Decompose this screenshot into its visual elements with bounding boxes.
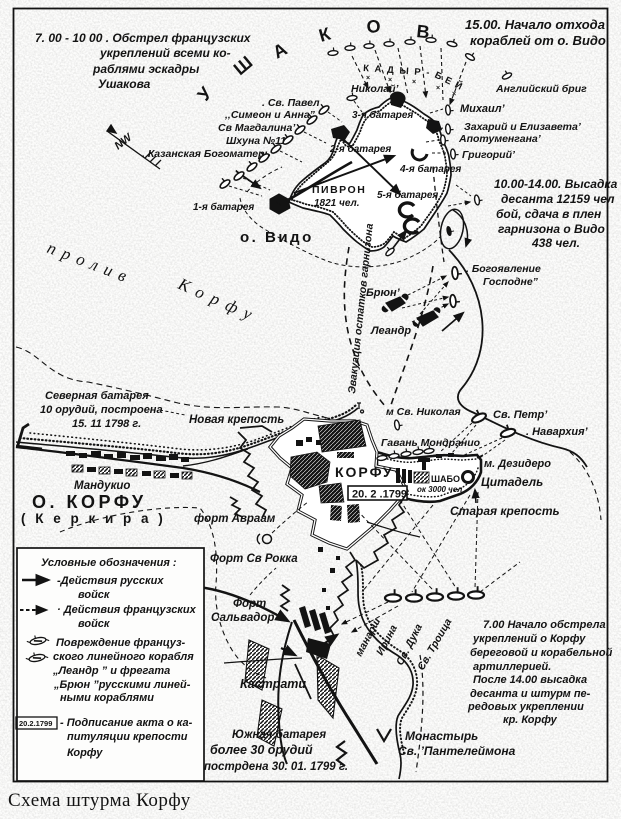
svg-text:Северная батарея: Северная батарея — [45, 390, 149, 402]
svg-text:артиллерией.: артиллерией. — [473, 661, 551, 673]
svg-text:7. 00 - 10 00 . Обстрел францу: 7. 00 - 10 00 . Обстрел французских — [35, 31, 252, 45]
svg-text:Монастырь: Монастырь — [405, 729, 478, 743]
svg-text:. Св. Павел: . Св. Павел — [262, 97, 320, 109]
svg-text:Леандр: Леандр — [370, 325, 411, 337]
svg-text:Южная батарея: Южная батарея — [232, 729, 326, 741]
svg-text:форт Авраам: форт Авраам — [194, 513, 276, 525]
svg-text:м. Дезидеро: м. Дезидеро — [484, 458, 551, 470]
svg-text:10 орудий, построена: 10 орудий, построена — [40, 404, 163, 416]
svg-text:Св Магдалина’: Св Магдалина’ — [218, 122, 296, 134]
svg-text:ПИВРОН: ПИВРОН — [312, 184, 366, 196]
svg-text:×: × — [436, 85, 440, 92]
svg-text:КОРФУ: КОРФУ — [335, 464, 394, 480]
svg-text:Брюн’: Брюн’ — [366, 287, 401, 299]
svg-text:Кастрати: Кастрати — [240, 677, 306, 691]
svg-text:ными кораблями: ными кораблями — [60, 692, 154, 704]
svg-text:редовых укреплении: редовых укреплении — [467, 701, 584, 713]
svg-text:гарнизона о Видо: гарнизона о Видо — [498, 222, 605, 236]
svg-text:. Казанская Богоматерь’: . Казанская Богоматерь’ — [142, 148, 275, 160]
svg-text:бой, сдача в плен: бой, сдача в плен — [496, 207, 602, 221]
svg-text:„Брюн ”русскими линей-: „Брюн ”русскими линей- — [53, 679, 191, 691]
svg-text:Григорий’: Григорий’ — [462, 149, 516, 161]
svg-text:Господне”: Господне” — [483, 276, 539, 288]
svg-text:5-я батарея: 5-я батарея — [377, 189, 438, 201]
svg-text:Новая крепость: Новая крепость — [189, 414, 284, 426]
svg-text:20.2.1799: 20.2.1799 — [19, 719, 52, 728]
svg-text:раблями эскадры: раблями эскадры — [92, 62, 200, 76]
svg-text:. Богоявление: . Богоявление — [466, 263, 541, 275]
svg-text:Мандукио: Мандукио — [74, 480, 130, 492]
svg-text:Михаил’: Михаил’ — [460, 103, 506, 115]
svg-text:м Св. Николая: м Св. Николая — [386, 406, 461, 418]
svg-text:После 14.00 высадка: После 14.00 высадка — [473, 674, 587, 686]
svg-text:Ушакова: Ушакова — [98, 77, 151, 91]
svg-text:Старая крепость: Старая крепость — [450, 504, 560, 518]
svg-text:1-я батарея: 1-я батарея — [193, 201, 254, 213]
svg-text:Св. ’Пантелеймона: Св. ’Пантелеймона — [398, 744, 516, 758]
svg-text:-Действия русских: -Действия русских — [57, 575, 164, 587]
svg-text:1821 чел.: 1821 чел. — [314, 198, 360, 209]
svg-text:×: × — [452, 91, 456, 98]
svg-text:Форт Св Рокка: Форт Св Рокка — [210, 553, 298, 565]
svg-text:Условные обозначения :: Условные обозначения : — [41, 557, 177, 569]
svg-text:15. 11 1798 г.: 15. 11 1798 г. — [72, 418, 141, 430]
svg-text:2-я батарея: 2-я батарея — [329, 143, 391, 155]
svg-text:войск: войск — [78, 589, 111, 601]
svg-text:кораблей от о. Видо: кораблей от о. Видо — [470, 33, 606, 48]
svg-text:береговой и корабельной: береговой и корабельной — [470, 647, 613, 659]
svg-text:15.00. Начало отхода: 15.00. Начало отхода — [465, 17, 605, 32]
svg-text:Захарий и Елизавета’: Захарий и Елизавета’ — [464, 121, 582, 133]
svg-text:- Подписание акта о ка-: - Подписание акта о ка- — [60, 717, 193, 729]
svg-text:„Леандр ” и фрегата: „Леандр ” и фрегата — [52, 665, 170, 677]
svg-text:Св. Петр’: Св. Петр’ — [493, 409, 548, 421]
svg-text:кр. Корфу: кр. Корфу — [503, 714, 558, 726]
svg-text:десанта и штурм пе-: десанта и штурм пе- — [470, 688, 591, 700]
svg-text:О. КОРФУ: О. КОРФУ — [32, 492, 147, 512]
svg-text:438 чел.: 438 чел. — [531, 236, 580, 250]
svg-text:Цитадель: Цитадель — [481, 475, 543, 489]
svg-text:. Навархия’: . Навархия’ — [526, 426, 589, 438]
svg-text:10.00-14.00. Высадка: 10.00-14.00. Высадка — [494, 177, 618, 191]
svg-text:укреплений о Корфу: укреплений о Корфу — [472, 633, 586, 645]
svg-text:Схема штурма Корфу: Схема штурма Корфу — [8, 790, 191, 811]
svg-text:20. 2 .1799: 20. 2 .1799 — [352, 489, 407, 501]
svg-text:укреплений всеми ко-: укреплений всеми ко- — [99, 46, 231, 60]
svg-text:Английский бриг: Английский бриг — [495, 83, 587, 95]
svg-text:×: × — [388, 77, 392, 84]
svg-text:Форт: Форт — [233, 598, 266, 610]
svg-text:( К е р к и р а ): ( К е р к и р а ) — [21, 511, 166, 526]
svg-text:более 30 орудий: более 30 орудий — [210, 743, 313, 757]
svg-text:ского линейного корабля: ского линейного корабля — [53, 651, 194, 663]
svg-text:· Действия французских: · Действия французских — [57, 604, 197, 616]
svg-text:войск: войск — [78, 618, 111, 630]
svg-text:Николай’: Николай’ — [351, 83, 400, 95]
svg-text:десанта 12159 чел: десанта 12159 чел — [501, 192, 615, 206]
svg-text:питуляции крепости: питуляции крепости — [67, 731, 188, 743]
svg-text:Сальвадор: Сальвадор — [211, 612, 274, 624]
svg-text:Корфу: Корфу — [67, 747, 103, 759]
svg-text:×: × — [366, 75, 370, 82]
svg-text:Повреждение француз-: Повреждение француз- — [56, 637, 186, 649]
svg-text:ШАБО: ШАБО — [431, 474, 460, 484]
svg-text:О: О — [366, 16, 381, 37]
svg-text:×: × — [412, 79, 416, 86]
svg-text:Апотуменгана’: Апотуменгана’ — [458, 133, 542, 145]
svg-text:пострдена 30. 01. 1799 г.: пострдена 30. 01. 1799 г. — [204, 761, 348, 773]
svg-text:4-я батарея: 4-я батарея — [399, 163, 461, 175]
svg-text:о. Видо: о. Видо — [240, 229, 314, 246]
svg-text:7.00 Начало обстрела: 7.00 Начало обстрела — [483, 619, 606, 631]
svg-text:‚‚Симеон и Анна”: ‚‚Симеон и Анна” — [224, 109, 316, 121]
svg-text:Гавань Мондранио: Гавань Мондранио — [381, 437, 481, 449]
svg-text:ок 3000 чел: ок 3000 чел — [417, 485, 462, 494]
